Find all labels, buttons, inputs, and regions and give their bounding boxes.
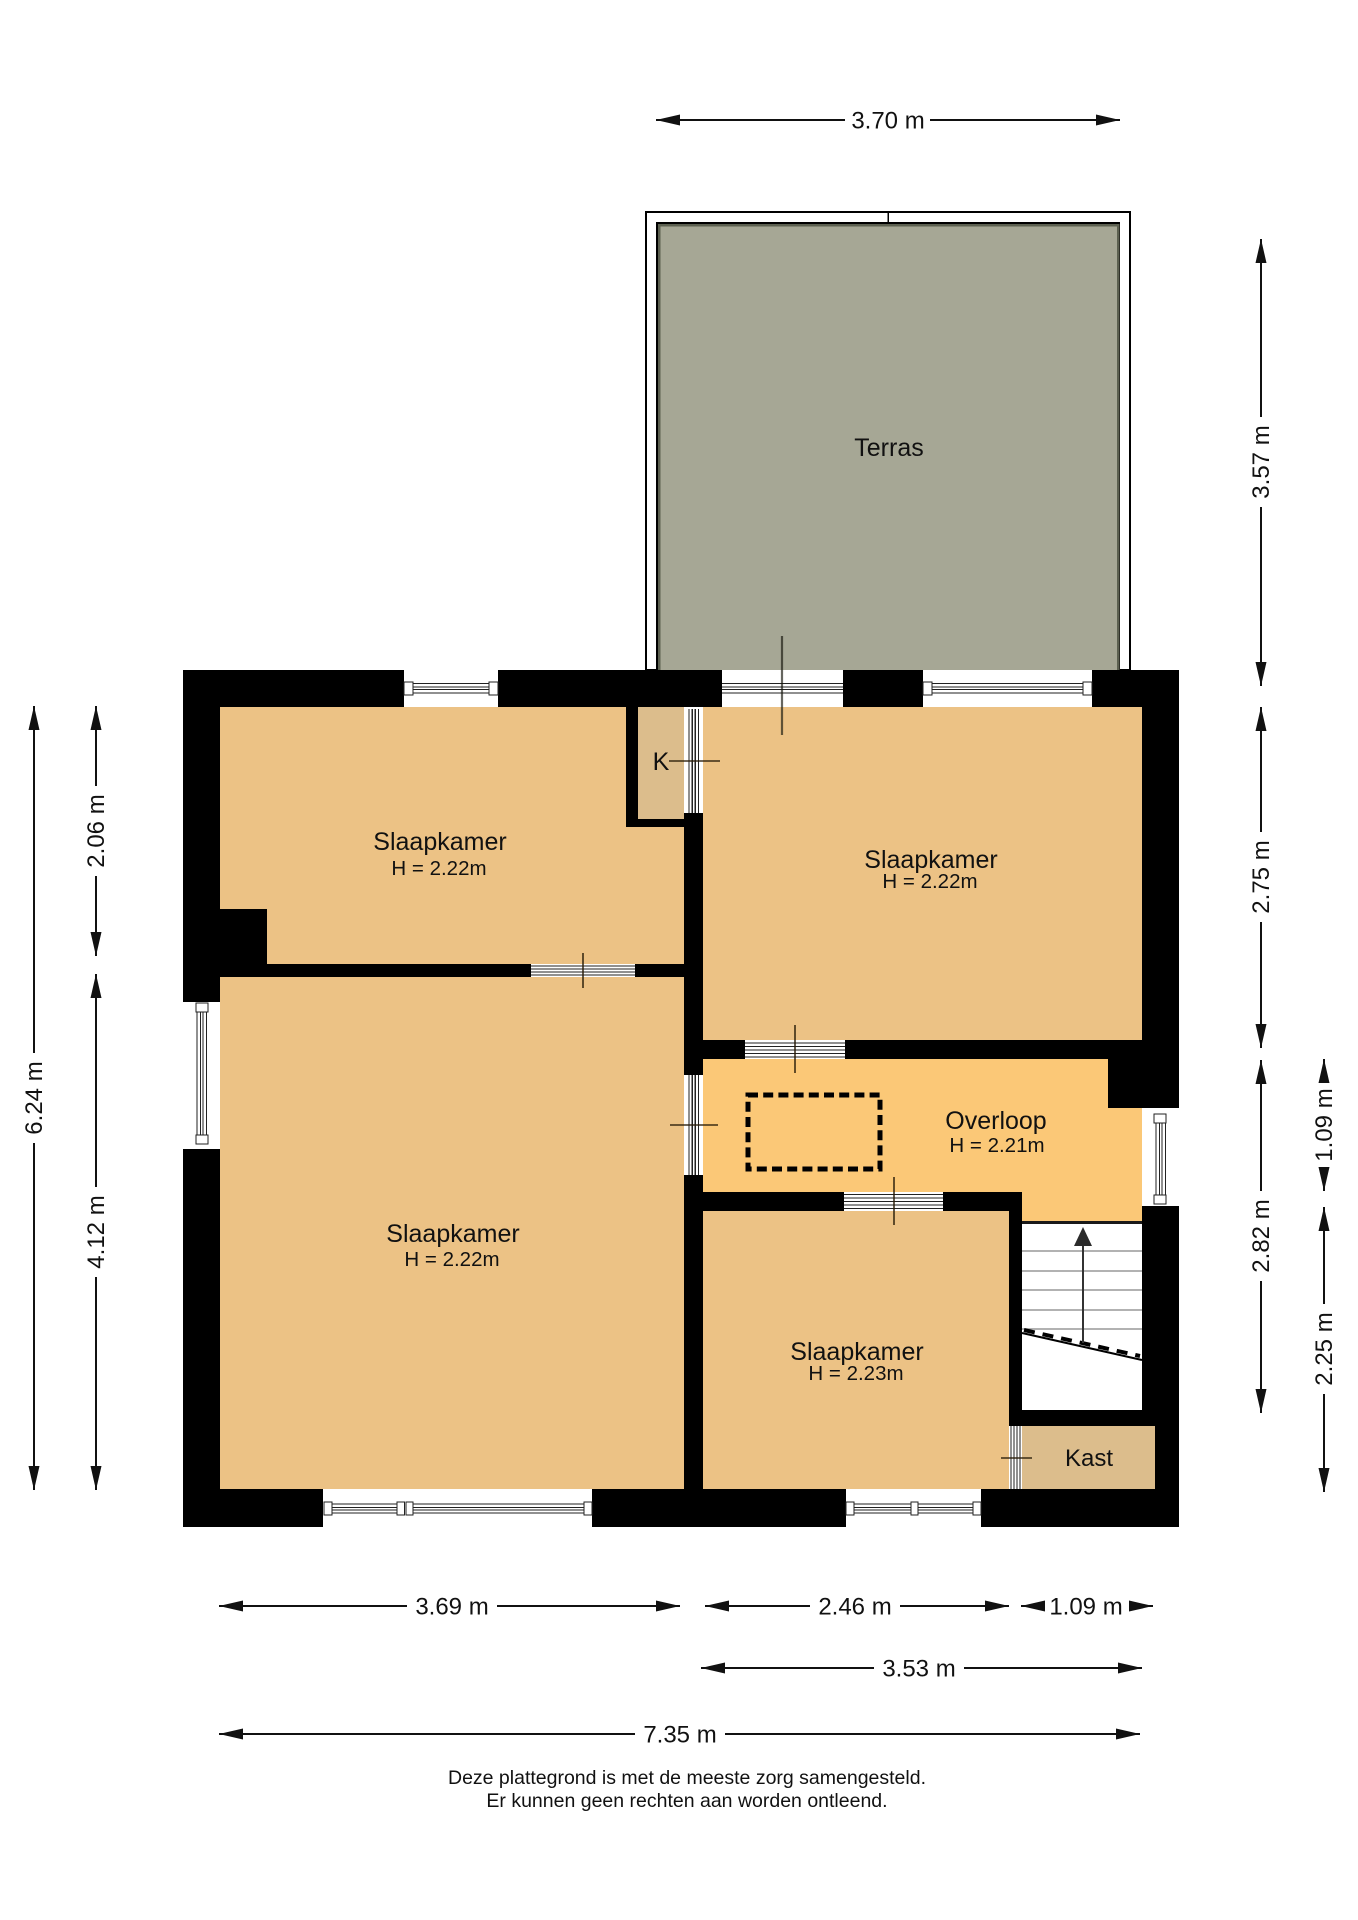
svg-text:Overloop: Overloop [945, 1107, 1046, 1135]
svg-text:2.82 m: 2.82 m [1248, 1199, 1275, 1272]
svg-text:7.35 m: 7.35 m [643, 1722, 716, 1749]
svg-text:H = 2.23m: H = 2.23m [808, 1362, 903, 1385]
svg-text:K: K [653, 748, 670, 776]
svg-text:2.75 m: 2.75 m [1248, 840, 1275, 913]
svg-text:2.25 m: 2.25 m [1311, 1312, 1338, 1385]
svg-text:Er kunnen geen rechten aan wor: Er kunnen geen rechten aan worden ontlee… [486, 1790, 887, 1812]
svg-text:H = 2.22m: H = 2.22m [404, 1248, 499, 1271]
svg-text:Slaapkamer: Slaapkamer [386, 1220, 519, 1248]
svg-text:Terras: Terras [854, 434, 923, 462]
svg-text:1.09 m: 1.09 m [1049, 1594, 1122, 1621]
svg-text:1.09 m: 1.09 m [1311, 1088, 1338, 1161]
svg-text:3.70 m: 3.70 m [851, 108, 924, 135]
svg-text:2.06 m: 2.06 m [83, 794, 110, 867]
svg-text:H = 2.22m: H = 2.22m [391, 857, 486, 880]
svg-text:H = 2.21m: H = 2.21m [949, 1134, 1044, 1157]
svg-text:H = 2.22m: H = 2.22m [882, 870, 977, 893]
svg-text:2.46 m: 2.46 m [818, 1594, 891, 1621]
svg-text:3.53 m: 3.53 m [882, 1656, 955, 1683]
svg-text:4.12 m: 4.12 m [83, 1195, 110, 1268]
svg-text:6.24 m: 6.24 m [21, 1061, 48, 1134]
svg-text:Kast: Kast [1065, 1445, 1113, 1472]
svg-text:3.57 m: 3.57 m [1248, 425, 1275, 498]
svg-text:Slaapkamer: Slaapkamer [373, 828, 506, 856]
svg-text:3.69 m: 3.69 m [415, 1594, 488, 1621]
svg-text:Deze plattegrond is met de mee: Deze plattegrond is met de meeste zorg s… [448, 1767, 926, 1789]
